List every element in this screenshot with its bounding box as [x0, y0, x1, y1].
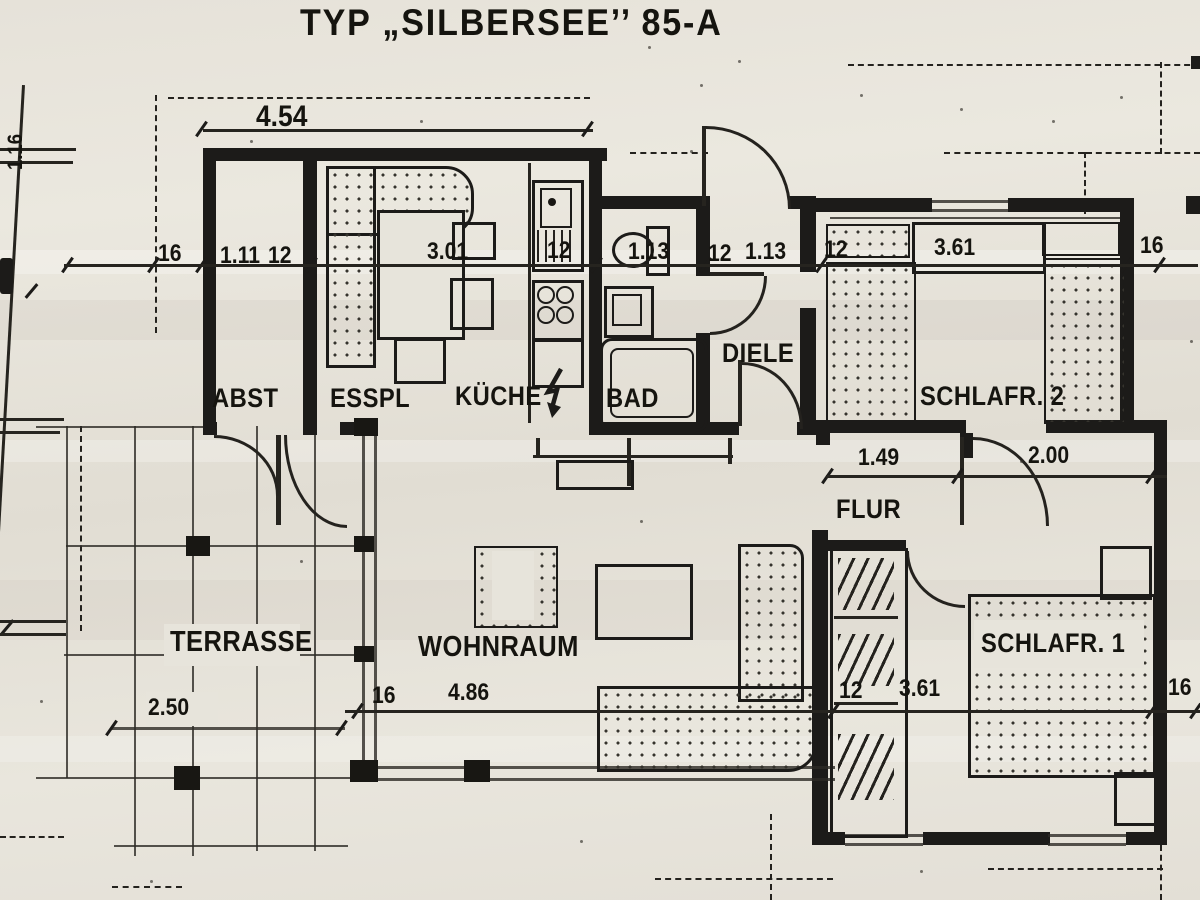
room-label-esspl: ESSPL: [330, 383, 410, 414]
wall: [800, 196, 816, 272]
adjacent-plan-line: [0, 418, 64, 421]
window: [845, 843, 923, 846]
scan-speck: [580, 840, 583, 843]
overhang-line: [112, 886, 182, 888]
dim-label: 12: [824, 236, 847, 264]
bad-door-arc: [710, 276, 767, 335]
scan-speck: [700, 84, 703, 87]
scan-blob: [1191, 56, 1200, 69]
dim-label: 1.49: [858, 444, 899, 472]
scan-speck: [1052, 120, 1055, 123]
terrace-grid-line: [36, 426, 204, 428]
nightstand: [1100, 546, 1152, 600]
terrace-grid-line: [134, 426, 136, 856]
terrace-grid-line: [114, 845, 348, 847]
room-label-terrasse: TERRASSE: [170, 626, 312, 659]
room-label-flur: FLUR: [836, 494, 901, 525]
electric-symbol-icon: [543, 366, 571, 422]
window-post: [354, 536, 374, 552]
scan-speck: [1120, 96, 1123, 99]
dim-label: 12: [547, 237, 570, 265]
overhang-line: [630, 152, 708, 154]
terrace-dim-line: [112, 727, 345, 730]
wall: [203, 148, 607, 161]
scan-speck: [1190, 340, 1193, 343]
stool: [556, 460, 634, 490]
sofa: [738, 544, 804, 702]
overhang-line: [988, 868, 1163, 870]
coffee-table: [595, 564, 693, 640]
window: [1048, 843, 1126, 846]
wall: [303, 148, 317, 435]
dim-label: 1.13: [628, 238, 669, 266]
corner-bench: [326, 166, 376, 368]
overhang-line: [1160, 62, 1162, 154]
stove-burner: [537, 286, 555, 304]
terrace-grid-line: [66, 426, 68, 778]
dim-chain-line: [345, 710, 1200, 713]
wall: [923, 832, 1050, 845]
window-post: [464, 760, 490, 782]
scan-speck: [960, 108, 963, 111]
scan-speck: [40, 700, 43, 703]
wall: [1008, 198, 1132, 212]
dim-label: 3.61: [899, 675, 940, 703]
dim-label: 1.11: [220, 242, 260, 270]
terrace-door-arc: [284, 435, 347, 528]
window-post: [350, 760, 378, 782]
scan-speck: [640, 520, 643, 523]
window-post: [354, 646, 374, 662]
armchair-seat: [492, 551, 534, 620]
window: [932, 200, 1008, 203]
terrace-grid-line: [80, 426, 82, 631]
terrace-grid-line: [64, 654, 166, 656]
wall: [203, 422, 217, 435]
room-label-bad: BAD: [606, 383, 659, 414]
window: [362, 435, 365, 768]
window: [362, 778, 835, 781]
floor-plan-sheet: TYP „SILBERSEE’’ 85-A 1.16: [0, 0, 1200, 900]
dim-label: 12: [839, 677, 862, 705]
stove-burner: [556, 286, 574, 304]
window: [374, 435, 377, 768]
closet-shelf: [834, 616, 898, 619]
dim-label: 12: [708, 240, 731, 268]
overhang-line: [944, 152, 1084, 154]
kitchen-sink: [540, 188, 572, 228]
washbasin-inner: [612, 294, 642, 326]
scan-speck: [250, 140, 253, 143]
scan-speck: [920, 870, 923, 873]
door-leaf: [960, 437, 964, 525]
wall: [589, 196, 708, 209]
room-label-wohnraum: WOHNRAUM: [418, 631, 579, 664]
scan-speck: [150, 880, 153, 883]
dim-label: 1.13: [745, 238, 786, 266]
window: [932, 209, 1008, 212]
scan-speck: [690, 150, 693, 153]
terrace-post: [186, 536, 210, 556]
wall: [816, 198, 932, 212]
dim-tick: [25, 283, 39, 299]
nightstand: [1114, 772, 1164, 826]
dim-left-edge: 1.16: [4, 134, 28, 170]
dim-overall-width: 4.54: [256, 100, 307, 134]
room-label-schlafr2: SCHLAFR. 2: [920, 381, 1064, 412]
scan-blob: [1186, 196, 1200, 214]
terrace-post: [174, 766, 200, 790]
room-label-abst: ABST: [212, 383, 278, 414]
abst-door-arc: [214, 435, 279, 496]
sideboard-leg: [728, 438, 732, 464]
dim-label: 2.00: [1028, 442, 1069, 470]
wall-inner-line: [830, 217, 1120, 219]
entrance-door-arc: [706, 126, 791, 209]
room-label-diele: DIELE: [722, 338, 794, 369]
plan-title: TYP „SILBERSEE’’ 85-A: [300, 2, 723, 44]
scan-speck: [860, 94, 863, 97]
dim-label: 4.86: [448, 679, 489, 707]
scan-speck: [300, 560, 303, 563]
wall: [800, 308, 816, 435]
window-post: [354, 418, 378, 436]
chair: [450, 278, 494, 330]
dim-label: 12: [268, 242, 291, 270]
dim-label: 16: [158, 240, 181, 268]
room-label-kueche: KÜCHE: [455, 381, 542, 412]
scan-speck: [648, 46, 651, 49]
scan-speck: [1020, 460, 1023, 463]
overhang-line: [770, 814, 772, 900]
overhang-line: [155, 95, 157, 333]
coat-hangers: [838, 734, 894, 800]
overhang-line: [0, 836, 64, 838]
dim-label: 16: [1168, 674, 1191, 702]
stove-burner: [556, 306, 574, 324]
coat-hangers: [838, 558, 894, 610]
adjacent-plan-line: [0, 431, 60, 434]
chair: [394, 338, 446, 384]
scan-speck: [738, 60, 741, 63]
diele-door-arc: [742, 362, 803, 429]
sideboard-leg: [536, 438, 540, 458]
dim-chain-line: [826, 475, 1167, 478]
scan-blob: [0, 258, 13, 294]
wardrobe: [1042, 222, 1120, 256]
sofa: [597, 686, 818, 772]
overhang-line: [655, 878, 833, 880]
room-label-schlafr1: SCHLAFR. 1: [981, 628, 1125, 659]
dim-label: 16: [372, 682, 395, 710]
stove-burner: [537, 306, 555, 324]
overhang-line: [168, 97, 590, 99]
terrace-grid-line: [66, 545, 363, 547]
sideboard-edge: [533, 455, 733, 458]
window: [1048, 834, 1126, 837]
bed: [826, 262, 916, 424]
scan-speck: [420, 120, 423, 123]
overhang-line: [1086, 152, 1200, 154]
overhang-line: [848, 64, 1200, 66]
dim-label: 16: [1140, 232, 1163, 260]
overhang-line: [1160, 845, 1162, 900]
adjacent-plan-line: [0, 633, 66, 636]
adjacent-plan-line: [0, 620, 66, 623]
dim-label: 3.61: [934, 234, 975, 262]
flur-door-arc: [906, 551, 965, 608]
dim-label: 3.01: [427, 238, 468, 266]
faucet: [548, 198, 556, 206]
dim-terrace-width: 2.50: [148, 694, 189, 722]
